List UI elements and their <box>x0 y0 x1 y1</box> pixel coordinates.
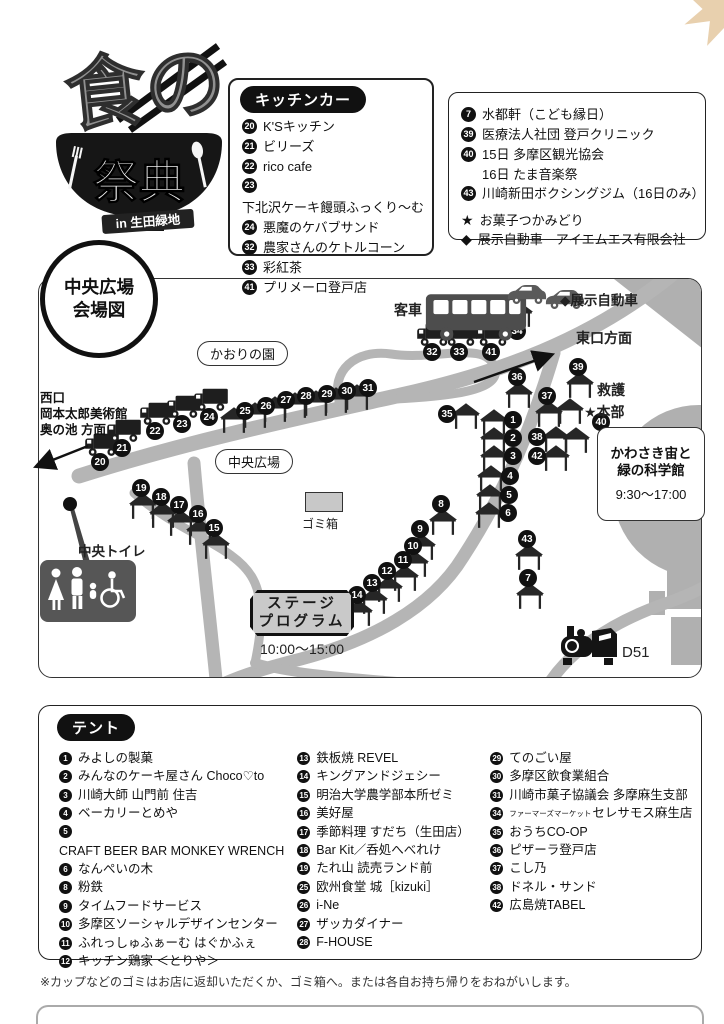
item-label: 美好屋 <box>316 806 354 821</box>
list-item: 6なんぺいの木 <box>59 862 297 877</box>
list-item: 13鉄板焼 REVEL <box>297 751 490 766</box>
map-marker-6: 6 <box>499 504 517 522</box>
east-arrow-icon <box>468 348 562 390</box>
number-badge: 36 <box>490 844 503 857</box>
map-marker-35: 35 <box>438 405 456 423</box>
list-item: 12キッチン鶏家 ＜とりや＞ <box>59 954 297 969</box>
item-label: F-HOUSE <box>316 935 372 950</box>
item-label: てのごい屋 <box>509 751 572 766</box>
number-badge: 34 <box>490 807 503 820</box>
number-badge: 9 <box>59 900 72 913</box>
list-item: 19たれ山 読売ランド前 <box>297 861 490 876</box>
map-marker-31: 31 <box>359 379 377 397</box>
item-label: こし乃 <box>509 861 547 876</box>
label-trash: ゴミ箱 <box>302 515 338 532</box>
label-west-exit: 西口 岡本太郎美術館 奥の池 方面 <box>40 390 128 438</box>
item-label: ふれっしゅふぁーむ はぐかふぇ <box>78 936 256 951</box>
map-marker-33: 33 <box>450 343 468 361</box>
science-line1: かわさき宙と <box>611 445 692 462</box>
west-arrow-icon <box>30 442 96 472</box>
list-item: 36ピザーラ登戸店 <box>490 843 701 858</box>
number-badge: 16 <box>297 807 310 820</box>
locomotive-icon <box>558 624 622 670</box>
number-badge: 4 <box>59 807 72 820</box>
item-label: おうちCO-OP <box>509 825 587 840</box>
item-label: i-Ne <box>316 898 339 913</box>
stage-line2: プログラム <box>258 613 345 631</box>
number-badge: 35 <box>490 826 503 839</box>
number-badge: 3 <box>59 789 72 802</box>
label-central-plaza: 中央広場 <box>215 449 293 474</box>
item-label: ドネル・サンド <box>509 880 597 895</box>
item-label: ピザーラ登戸店 <box>509 843 597 858</box>
toilet-location-dot <box>63 497 77 511</box>
list-item: 27ザッカダイナー <box>297 917 490 932</box>
label-exhibit-car: ◆展示自動車 <box>560 289 638 309</box>
number-badge: 15 <box>297 789 310 802</box>
number-badge: 8 <box>59 881 72 894</box>
item-label: 広島焼TABEL <box>509 898 585 913</box>
number-badge: 27 <box>297 918 310 931</box>
stage-program-label: ステージ プログラム <box>250 590 354 636</box>
map-marker-13: 13 <box>363 574 381 592</box>
list-item: 28F-HOUSE <box>297 935 490 950</box>
list-item: 11ふれっしゅふぁーむ はぐかふぇ <box>59 936 297 951</box>
map-marker-12: 12 <box>378 562 396 580</box>
map-marker-2: 2 <box>504 429 522 447</box>
list-item: 37こし乃 <box>490 861 701 876</box>
science-museum-label: かわさき宙と 緑の科学館 9:30〜17:00 <box>597 427 705 521</box>
map-marker-18: 18 <box>152 488 170 506</box>
number-badge: 11 <box>59 937 72 950</box>
map-marker-22: 22 <box>146 422 164 440</box>
number-badge: 31 <box>490 789 503 802</box>
list-item: 9タイムフードサービス <box>59 899 297 914</box>
number-badge: 28 <box>297 936 310 949</box>
number-badge: 19 <box>297 862 310 875</box>
map-marker-17: 17 <box>170 496 188 514</box>
number-badge: 25 <box>297 881 310 894</box>
number-badge: 26 <box>297 899 310 912</box>
item-label: キッチン鶏家 ＜とりや＞ <box>78 954 219 969</box>
item-label: 多摩区ソーシャルデザインセンター <box>78 917 278 932</box>
list-item: 3川崎大師 山門前 住吉 <box>59 788 297 803</box>
science-line2: 緑の科学館 <box>617 462 685 479</box>
item-label: ファーマーズマーケットセレサモス麻生店 <box>509 806 692 821</box>
list-item: 17季節料理 すだち（生田店） <box>297 825 490 840</box>
list-item: 38ドネル・サンド <box>490 880 701 895</box>
item-label: CRAFT BEER BAR MONKEY WRENCH <box>59 844 284 859</box>
item-label: ベーカリーとめや <box>78 806 178 821</box>
list-item: 2みんなのケーキ屋さん Choco♡to <box>59 769 297 784</box>
list-item: 15明治大学農学部本所ゼミ <box>297 788 490 803</box>
tent-icon <box>555 398 585 425</box>
map-marker-42: 42 <box>528 447 546 465</box>
label-east-exit: 東口方面 <box>576 328 632 348</box>
list-item: 42広島焼TABEL <box>490 898 701 913</box>
map-title-badge: 中央広場 会場図 <box>40 240 158 358</box>
number-badge: 29 <box>490 752 503 765</box>
item-label: 川崎大師 山門前 住吉 <box>78 788 197 803</box>
item-label: みよしの製菓 <box>78 751 153 766</box>
label-first-aid: 救護 <box>597 380 625 400</box>
map-marker-32: 32 <box>423 343 441 361</box>
list-item: 26i-Ne <box>297 898 490 913</box>
list-item: 30多摩区飲食業組合 <box>490 769 701 784</box>
number-badge: 13 <box>297 752 310 765</box>
label-stage-time: 10:00〜15:00 <box>246 639 358 659</box>
label-central-toilet: 中央トイレ <box>78 540 146 560</box>
tent-list-column2: 13鉄板焼 REVEL14キングアンドジェシー15明治大学農学部本所ゼミ16美好… <box>297 751 490 972</box>
list-item: 14キングアンドジェシー <box>297 769 490 784</box>
item-label: なんぺいの木 <box>78 862 153 877</box>
flyer-page: 食の 祭典 in 生田緑地 キッチンカー 20K'Sキッチン21ビリーズ22ri… <box>0 0 724 1024</box>
list-item: 25欧州食堂 城［kizuki］ <box>297 880 490 895</box>
map-marker-3: 3 <box>504 447 522 465</box>
number-badge: 12 <box>59 955 72 968</box>
item-label: たれ山 読売ランド前 <box>316 861 432 876</box>
item-label: 多摩区飲食業組合 <box>509 769 609 784</box>
number-badge: 1 <box>59 752 72 765</box>
badge-line2: 会場図 <box>73 299 126 322</box>
number-badge: 5 <box>59 825 72 838</box>
item-label: 季節料理 すだち（生田店） <box>316 825 469 840</box>
label-d51: D51 <box>622 644 650 661</box>
list-item: 35おうちCO-OP <box>490 825 701 840</box>
map-marker-26: 26 <box>257 397 275 415</box>
map-marker-23: 23 <box>173 415 191 433</box>
item-label: タイムフードサービス <box>78 899 202 914</box>
item-label: 粉鉄 <box>78 880 103 895</box>
number-badge: 18 <box>297 844 310 857</box>
list-item: 8粉鉄 <box>59 880 297 895</box>
map-marker-11: 11 <box>394 551 412 569</box>
list-item: 10多摩区ソーシャルデザインセンター <box>59 917 297 932</box>
item-label: 川崎市菓子協議会 多摩麻生支部 <box>509 788 687 803</box>
map-marker-38: 38 <box>528 428 546 446</box>
tent-list-column1: 1みよしの製菓2みんなのケーキ屋さん Choco♡to3川崎大師 山門前 住吉4… <box>59 751 297 972</box>
number-badge: 10 <box>59 918 72 931</box>
number-badge: 37 <box>490 862 503 875</box>
number-badge: 17 <box>297 826 310 839</box>
map-marker-21: 21 <box>113 439 131 457</box>
list-item: 29てのごい屋 <box>490 751 701 766</box>
number-badge: 42 <box>490 899 503 912</box>
label-passenger-car: 客車 <box>394 300 422 320</box>
map-marker-43: 43 <box>518 530 536 548</box>
tent-legend-box: テント 1みよしの製菓2みんなのケーキ屋さん Choco♡to3川崎大師 山門前… <box>38 705 702 960</box>
tent-title: テント <box>57 714 135 741</box>
number-badge: 38 <box>490 881 503 894</box>
list-item: 4ベーカリーとめや <box>59 806 297 821</box>
item-label: 明治大学農学部本所ゼミ <box>316 788 454 803</box>
map-marker-9: 9 <box>411 520 429 538</box>
map-marker-5: 5 <box>500 486 518 504</box>
map-marker-28: 28 <box>297 387 315 405</box>
toilet-sign <box>40 560 136 622</box>
item-label: みんなのケーキ屋さん Choco♡to <box>78 769 264 784</box>
item-label: Bar Kit／呑処へべれけ <box>316 843 441 858</box>
restroom-pictograms-icon <box>40 560 136 622</box>
number-badge: 6 <box>59 863 72 876</box>
list-item: 18Bar Kit／呑処へべれけ <box>297 843 490 858</box>
list-item: 16美好屋 <box>297 806 490 821</box>
map-marker-30: 30 <box>338 382 356 400</box>
stage-line1: ステージ <box>267 595 337 613</box>
list-item: 1みよしの製菓 <box>59 751 297 766</box>
tent-list-column3: 29てのごい屋30多摩区飲食業組合31川崎市菓子協議会 多摩麻生支部34ファーマ… <box>490 751 701 972</box>
label-hq: ★本部 <box>584 402 625 422</box>
map-marker-4: 4 <box>501 467 519 485</box>
number-badge: 14 <box>297 770 310 783</box>
map-marker-39: 39 <box>569 358 587 376</box>
number-badge: 2 <box>59 770 72 783</box>
map-marker-27: 27 <box>277 391 295 409</box>
map-marker-24: 24 <box>200 408 218 426</box>
label-kaori-garden: かおりの園 <box>197 341 288 366</box>
map-marker-15: 15 <box>205 519 223 537</box>
map-marker-16: 16 <box>189 505 207 523</box>
map-marker-7: 7 <box>519 569 537 587</box>
item-label: キングアンドジェシー <box>316 769 441 784</box>
trash-box-icon <box>305 492 343 512</box>
list-item: 34ファーマーズマーケットセレサモス麻生店 <box>490 806 701 821</box>
number-badge: 30 <box>490 770 503 783</box>
item-label: 欧州食堂 城［kizuki］ <box>316 880 438 895</box>
map-marker-25: 25 <box>236 402 254 420</box>
map-marker-29: 29 <box>318 385 336 403</box>
science-hours: 9:30〜17:00 <box>616 484 687 503</box>
list-item: 5CRAFT BEER BAR MONKEY WRENCH <box>59 825 297 859</box>
badge-line1: 中央広場 <box>64 276 134 299</box>
list-item: 31川崎市菓子協議会 多摩麻生支部 <box>490 788 701 803</box>
footer-note: ※カップなどのゴミはお店に返却いただくか、ゴミ箱へ。または各自お持ち帰りをおねが… <box>40 973 577 990</box>
page-bottom-edge <box>36 1005 704 1024</box>
map-marker-19: 19 <box>132 479 150 497</box>
item-label: 鉄板焼 REVEL <box>316 751 398 766</box>
map-marker-8: 8 <box>432 495 450 513</box>
map-marker-1: 1 <box>504 411 522 429</box>
item-label: ザッカダイナー <box>316 917 403 932</box>
